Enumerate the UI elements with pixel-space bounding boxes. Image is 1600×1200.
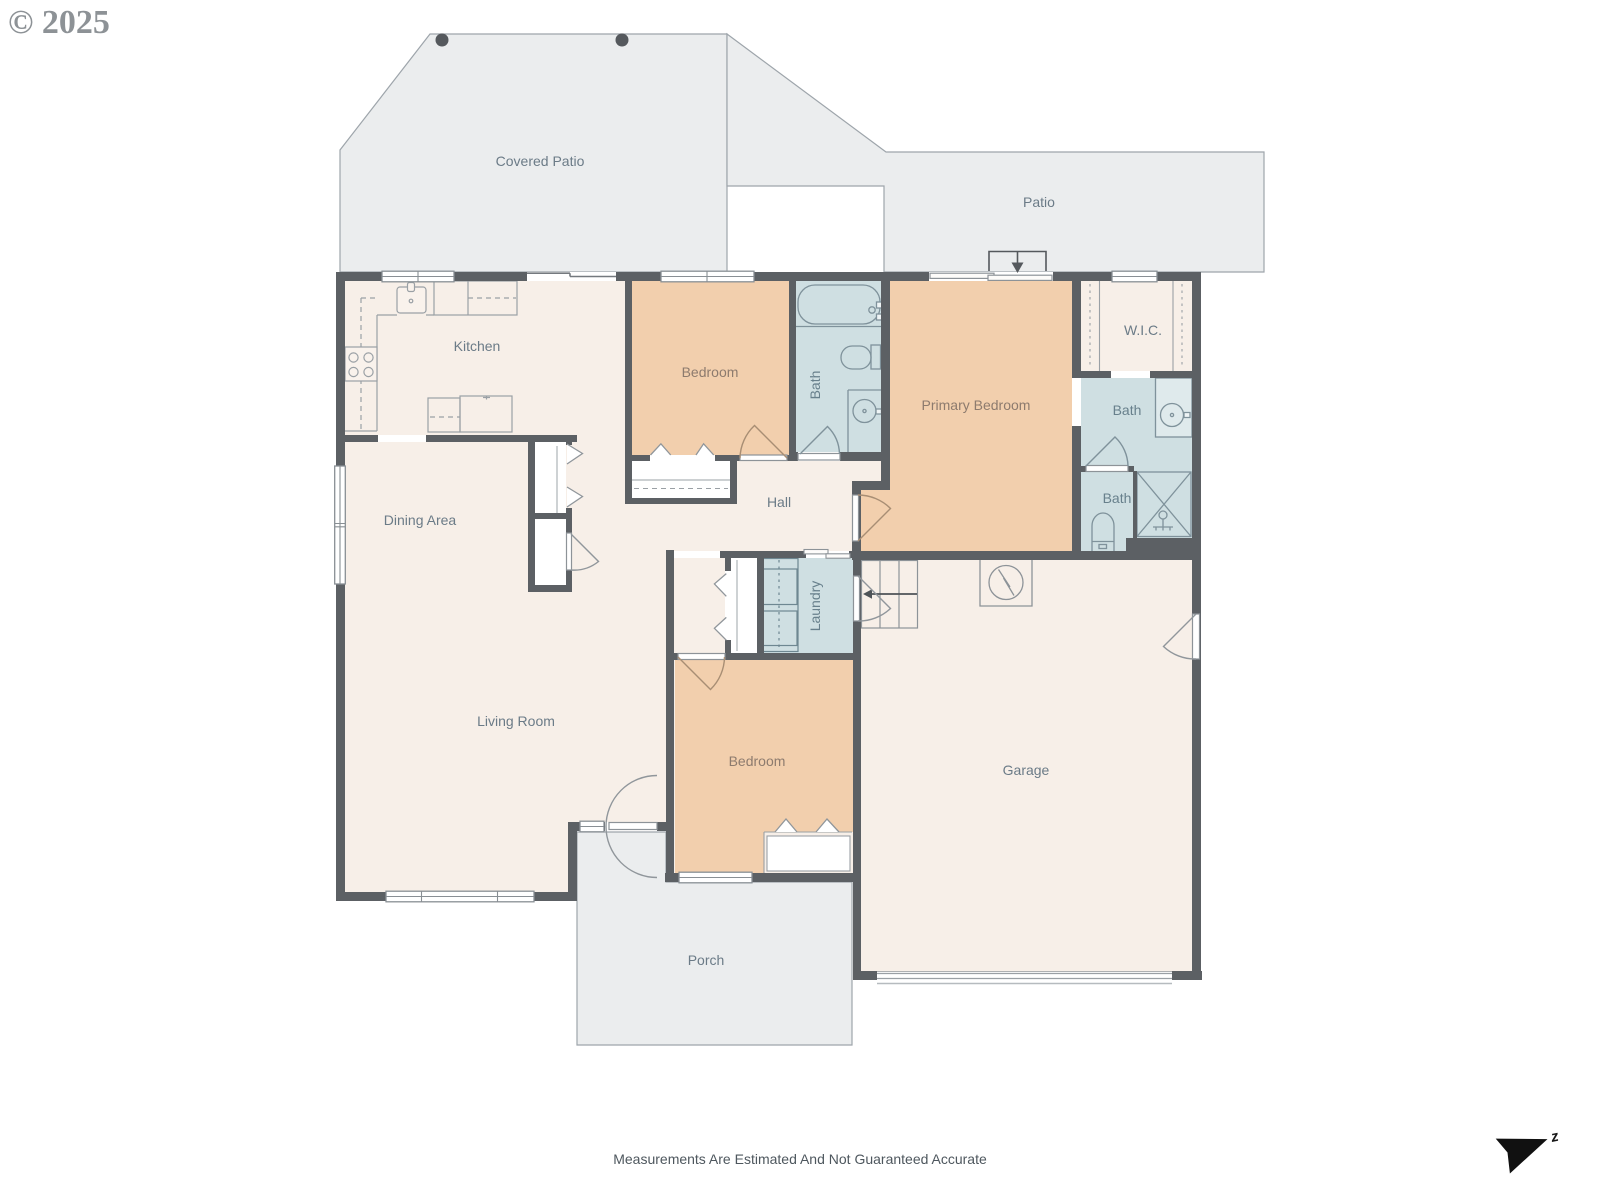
svg-text:Laundry: Laundry — [807, 581, 823, 632]
svg-text:Patio: Patio — [1023, 194, 1055, 210]
svg-text:Measurements Are Estimated And: Measurements Are Estimated And Not Guara… — [613, 1151, 987, 1167]
svg-text:Bedroom: Bedroom — [729, 753, 786, 769]
svg-text:Bath: Bath — [807, 371, 823, 400]
svg-text:Hall: Hall — [767, 494, 791, 510]
svg-text:Bath: Bath — [1103, 490, 1132, 506]
svg-text:Bedroom: Bedroom — [682, 364, 739, 380]
svg-text:Porch: Porch — [688, 952, 725, 968]
svg-text:W.I.C.: W.I.C. — [1124, 322, 1162, 338]
svg-text:Garage: Garage — [1003, 762, 1050, 778]
svg-text:Kitchen: Kitchen — [454, 338, 501, 354]
svg-text:Living Room: Living Room — [477, 713, 555, 729]
svg-text:Bath: Bath — [1113, 402, 1142, 418]
svg-text:Primary Bedroom: Primary Bedroom — [922, 397, 1031, 413]
svg-text:© 2025: © 2025 — [8, 4, 110, 41]
svg-text:Dining Area: Dining Area — [384, 512, 457, 528]
svg-text:Covered Patio: Covered Patio — [496, 153, 585, 169]
